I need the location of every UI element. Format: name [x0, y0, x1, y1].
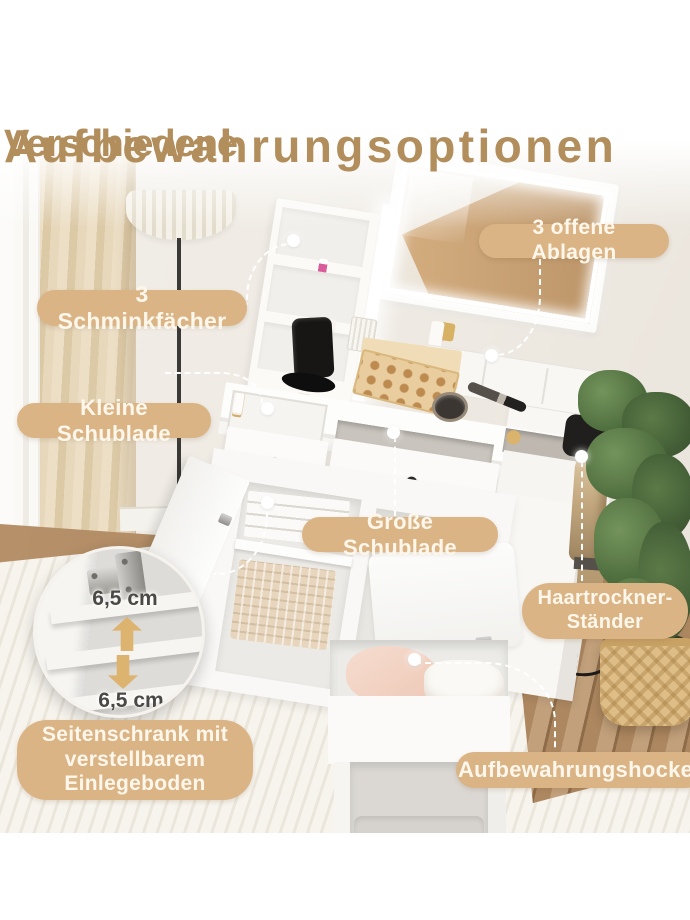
woven-basket: [600, 638, 690, 726]
callout-small-drawer: Kleine Schublade: [17, 403, 211, 438]
connector-dot: [261, 402, 274, 415]
connector-line: [581, 461, 584, 581]
connector-dot: [387, 426, 400, 439]
powder-compact: [432, 392, 468, 422]
product-infographic: Verschiedene Aufbewahrungsoptionen 6,5 c…: [0, 0, 690, 920]
phone: [291, 317, 334, 379]
callout-large-drawer: Große Schublade: [302, 517, 498, 552]
callout-makeup-compartments: 3 Schminkfächer: [37, 290, 247, 326]
stool-cushion: [354, 816, 484, 833]
connector-dot: [261, 496, 274, 509]
measurement-top: 6,5 cm: [70, 587, 180, 611]
connector-line: [394, 436, 397, 516]
page-title-line-2: Aufbewahrungsoptionen: [4, 124, 617, 169]
cosmetic-item: [506, 429, 522, 445]
connector-dot: [485, 349, 498, 362]
callout-hairdryer-stand: Haartrockner-Ständer: [522, 583, 688, 639]
callout-storage-stool: Aufbewahrungshocker: [456, 752, 690, 788]
stool-leg: [334, 762, 350, 833]
detail-inset-circle: 6,5 cm 6,5 cm: [33, 546, 205, 718]
connector-dot: [408, 653, 421, 666]
callout-side-cabinet: Seitenschrank mit verstellbarem Einlegeb…: [17, 720, 253, 800]
connector-dot: [287, 234, 300, 247]
tray-divider: [541, 368, 549, 404]
callout-open-shelves: 3 offene Ablagen: [479, 224, 669, 258]
measurement-bottom: 6,5 cm: [76, 689, 186, 713]
connector-dot: [575, 450, 588, 463]
